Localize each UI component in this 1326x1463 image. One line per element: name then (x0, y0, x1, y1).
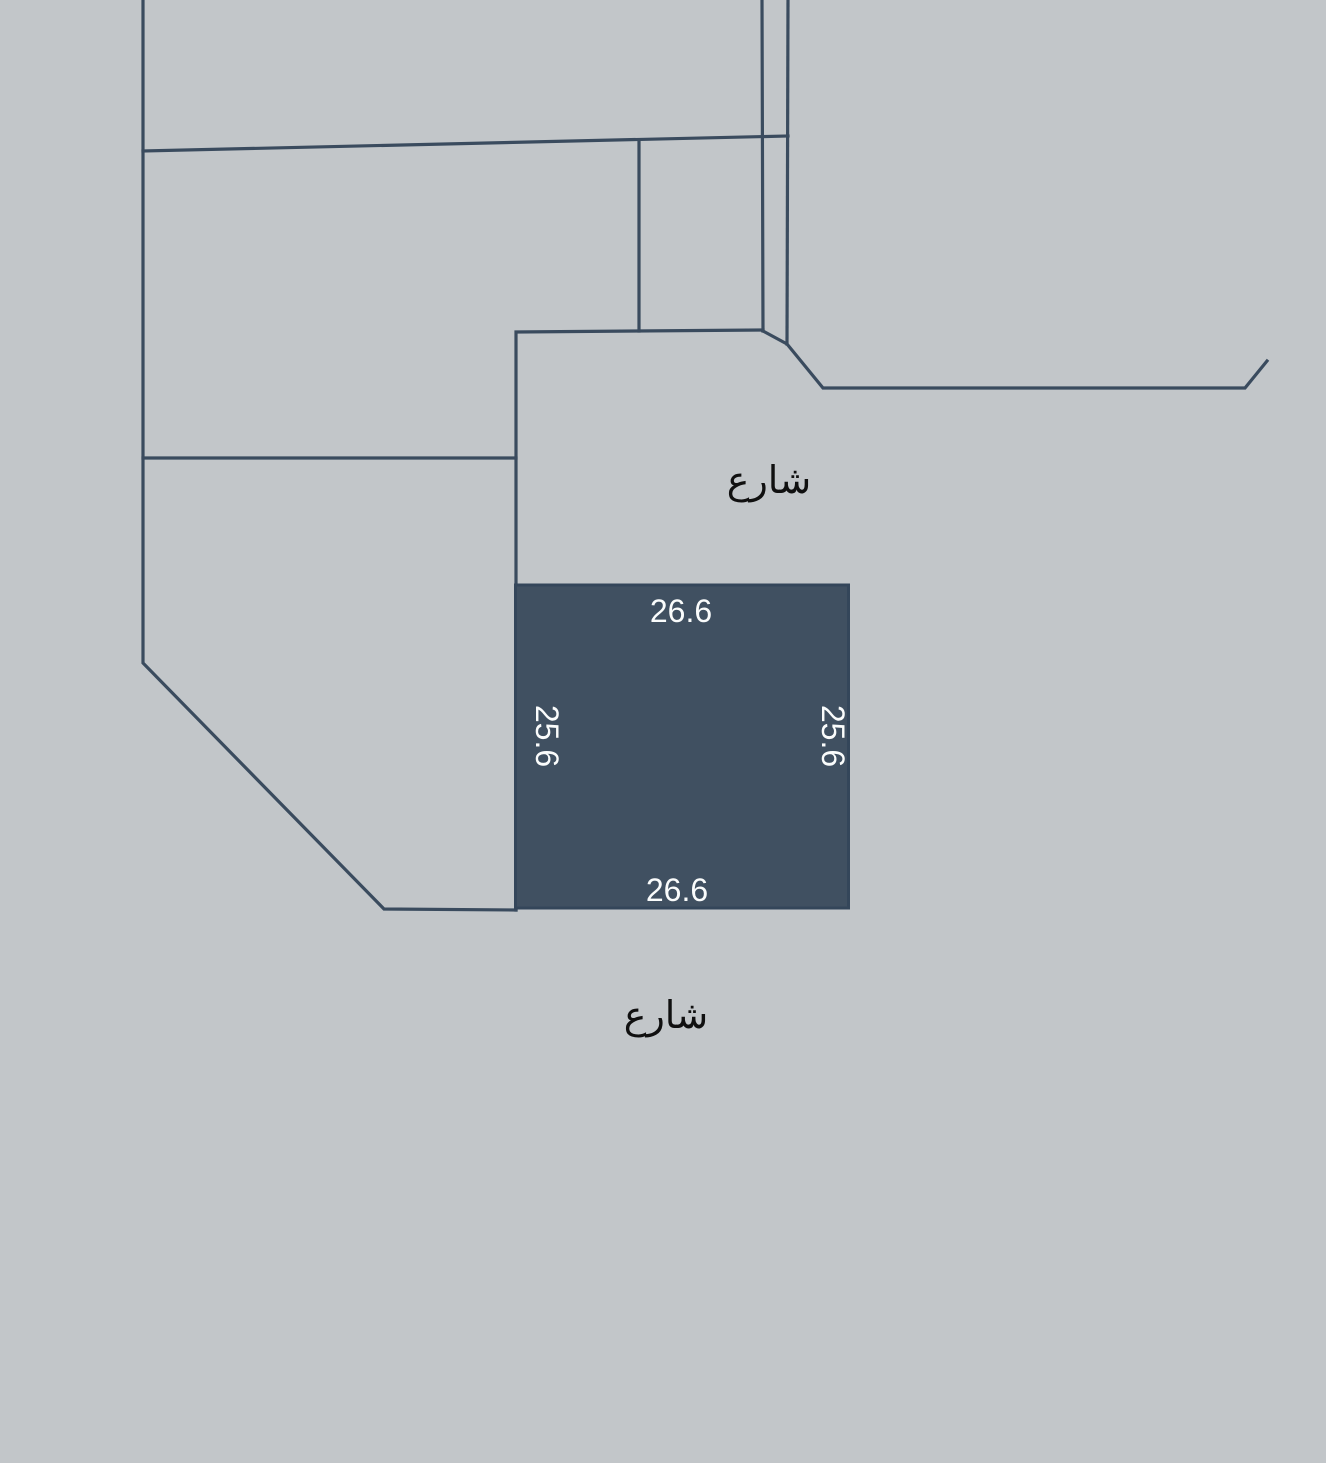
parcel-dimension-left: 25.6 (529, 705, 565, 767)
lane-right-line (787, 0, 788, 344)
street-label-top: شارع (727, 458, 811, 502)
parcel-dimension-right: 25.6 (815, 705, 851, 767)
upper-boundary-line (143, 136, 788, 151)
parcel-dimension-top: 26.6 (650, 593, 712, 629)
street-label-bottom: شارع (624, 993, 708, 1037)
lane-left-line (762, 0, 763, 331)
parcel-map[interactable]: 26.6 26.6 25.6 25.6 شارع شارع (0, 0, 1326, 1463)
northeast-street-boundary-line (763, 331, 1267, 388)
west-block-boundary-line (143, 0, 516, 910)
parcel-map-canvas[interactable]: 26.6 26.6 25.6 25.6 شارع شارع (0, 0, 1326, 1463)
parcel-dimension-bottom: 26.6 (646, 872, 708, 908)
